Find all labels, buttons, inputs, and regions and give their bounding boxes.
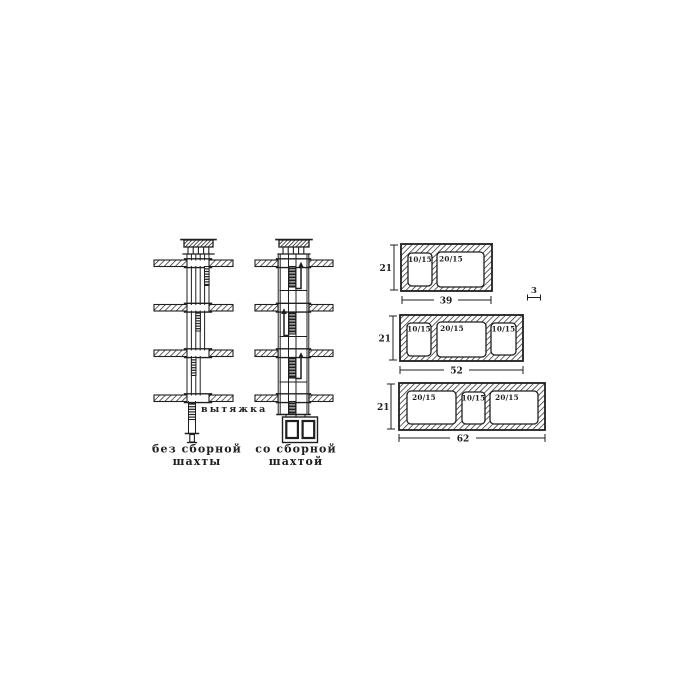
block3-opening1-label: 20/15: [412, 393, 436, 402]
caption-without-shaft-line2: шахты: [173, 455, 222, 468]
block3-height-label: 21: [377, 403, 390, 413]
shaft-a-cap-icon: [181, 240, 216, 254]
block2-height-label: 21: [378, 335, 391, 345]
block3-width-dimension: [399, 434, 545, 442]
caption-with-shaft-line2: шахтой: [269, 455, 323, 468]
shaft-b-grilles: [289, 267, 296, 414]
block2-opening3-label: 10/15: [492, 325, 516, 334]
caption-with-shaft-line1: со сборной: [255, 443, 336, 456]
shaft-without-collector-diagram: вытяжка без сборной шахты: [152, 240, 267, 468]
block-section-3: 20/15 10/15 20/15 21 62: [377, 383, 545, 445]
exhaust-label: вытяжка: [201, 404, 267, 415]
block2-width-label: 52: [450, 367, 463, 377]
wall-thickness-dimension: 3: [528, 286, 541, 301]
ventilation-diagram: вытяжка без сборной шахты: [0, 0, 700, 700]
block1-opening1-label: 10/15: [408, 255, 432, 264]
block2-opening1-label: 10/15: [407, 325, 431, 334]
block3-opening3-label: 20/15: [495, 393, 519, 402]
shaft-a-floor-slabs: [154, 260, 233, 402]
caption-without-shaft-line1: без сборной: [152, 443, 242, 456]
block2-opening2-label: 20/15: [440, 324, 464, 333]
shaft-b-outlet: [277, 415, 318, 443]
block-section-2: 10/15 20/15 10/15 21 52: [378, 315, 523, 377]
shaft-with-collector-diagram: со сборной шахтой: [255, 240, 337, 468]
block1-width-label: 39: [440, 297, 453, 307]
shaft-b-cap-icon: [276, 240, 312, 254]
block1-height-label: 21: [379, 264, 392, 274]
block-section-1: 10/15 20/15 21 39: [379, 244, 492, 307]
block3-width-label: 62: [457, 435, 470, 445]
shaft-a-outlet: [186, 434, 199, 443]
wall-thickness-label: 3: [531, 286, 537, 296]
ventilation-diagram-page: вытяжка без сборной шахты: [0, 0, 700, 700]
block3-opening2-label: 10/15: [462, 394, 486, 403]
block1-opening2-label: 20/15: [439, 255, 463, 264]
